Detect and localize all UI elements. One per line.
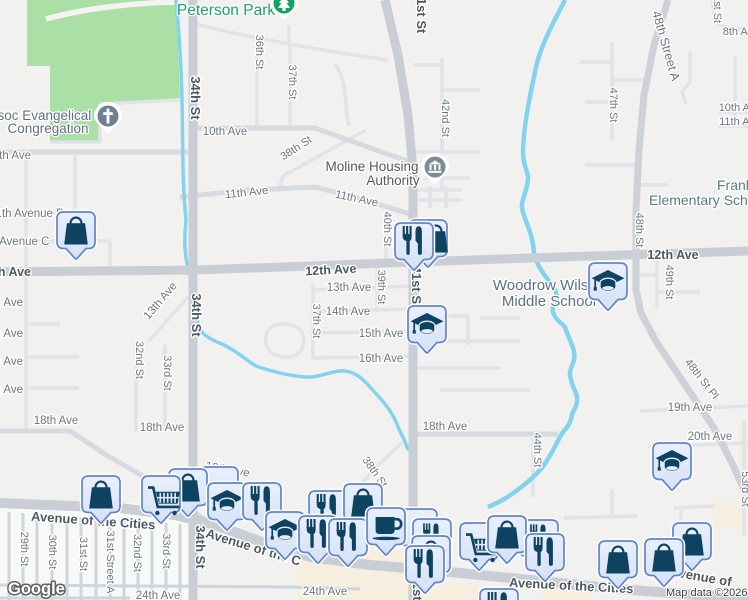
svg-text:47th St: 47th St	[607, 88, 619, 123]
svg-text:Franklin: Franklin	[717, 177, 748, 193]
svg-text:32nd St: 32nd St	[133, 341, 145, 379]
svg-text:39th St: 39th St	[375, 270, 387, 305]
svg-text:37th St: 37th St	[286, 65, 298, 100]
svg-text:33rd St: 33rd St	[160, 533, 172, 568]
svg-text:37th St: 37th St	[310, 304, 322, 339]
svg-text:13th Ave: 13th Ave	[327, 282, 372, 294]
svg-text:42nd St: 42nd St	[439, 99, 451, 137]
svg-text:13th Ave: 13th Ave	[0, 297, 23, 309]
svg-text:19th Ave: 19th Ave	[668, 402, 713, 414]
svg-text:11th Ave: 11th Ave	[719, 116, 748, 128]
svg-text:53rd St: 53rd St	[739, 471, 748, 506]
svg-text:Middle School: Middle School	[502, 293, 596, 310]
svg-text:41st St: 41st St	[409, 266, 424, 309]
svg-text:49th St: 49th St	[663, 265, 675, 300]
svg-text:14th Ave: 14th Ave	[0, 328, 23, 340]
svg-text:41st St: 41st St	[414, 0, 429, 34]
svg-text:44th St: 44th St	[531, 433, 543, 468]
svg-text:Google: Google	[8, 580, 65, 598]
svg-text:11th Avenue C: 11th Avenue C	[0, 236, 49, 248]
svg-text:Moline Housing: Moline Housing	[325, 159, 418, 174]
svg-text:12th Ave: 12th Ave	[647, 248, 698, 262]
svg-text:24th Ave: 24th Ave	[303, 586, 348, 598]
svg-text:Map data ©2026: Map data ©2026	[666, 587, 748, 599]
svg-text:16th Ave: 16th Ave	[0, 384, 23, 396]
svg-text:16th Ave: 16th Ave	[359, 353, 404, 365]
svg-text:34th St: 34th St	[188, 76, 203, 120]
svg-text:36th St: 36th St	[253, 35, 265, 70]
svg-text:31st St: 31st St	[77, 537, 89, 571]
svg-text:14th Ave: 14th Ave	[326, 306, 371, 318]
svg-text:40th St: 40th St	[381, 212, 393, 247]
svg-text:8th Ave: 8th Ave	[723, 26, 748, 38]
svg-text:15th Ave: 15th Ave	[359, 328, 404, 340]
svg-text:12th Ave: 12th Ave	[0, 265, 31, 279]
svg-text:Authority: Authority	[366, 173, 420, 188]
svg-text:12th Ave: 12th Ave	[305, 262, 357, 279]
svg-text:34th St: 34th St	[189, 293, 204, 337]
svg-text:51st St: 51st St	[711, 0, 723, 23]
svg-text:Peterson Park: Peterson Park	[177, 2, 275, 19]
svg-text:Elementary School: Elementary School	[649, 192, 748, 208]
svg-text:10th Ave: 10th Ave	[719, 102, 748, 114]
svg-text:18th Ave: 18th Ave	[140, 422, 185, 434]
svg-text:11th Avenue B: 11th Avenue B	[0, 208, 64, 220]
svg-text:18th Ave: 18th Ave	[423, 421, 468, 433]
svg-text:31st Street A: 31st Street A	[104, 531, 116, 595]
svg-text:10th Ave: 10th Ave	[0, 150, 31, 162]
svg-text:32nd St: 32nd St	[131, 534, 143, 572]
svg-text:24th Ave: 24th Ave	[136, 590, 181, 600]
svg-text:30th St: 30th St	[46, 535, 58, 570]
svg-text:15th Ave: 15th Ave	[0, 356, 23, 368]
svg-text:48th St: 48th St	[633, 213, 645, 248]
svg-text:10th Ave: 10th Ave	[203, 126, 248, 138]
svg-text:20th Ave: 20th Ave	[688, 431, 733, 443]
svg-text:18th Ave: 18th Ave	[34, 415, 79, 427]
svg-text:Congregation: Congregation	[7, 121, 88, 136]
svg-text:33rd St: 33rd St	[161, 355, 173, 390]
svg-text:29th St: 29th St	[18, 532, 30, 567]
